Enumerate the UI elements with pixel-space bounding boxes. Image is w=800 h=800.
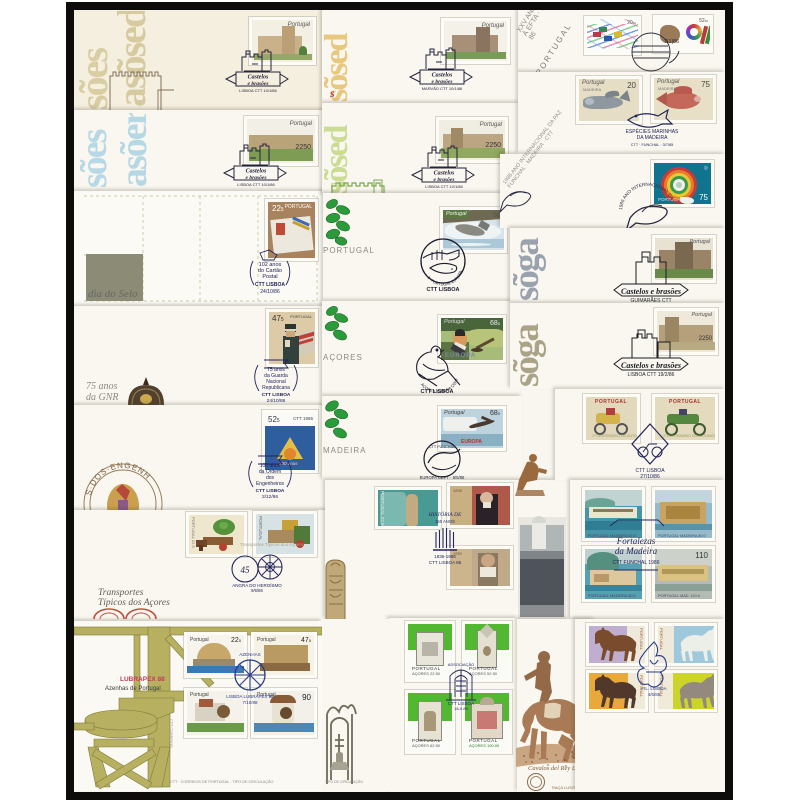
svg-text:MARVÃO CTT 10/1/86: MARVÃO CTT 10/1/86	[422, 86, 463, 91]
svg-text:18-9-89: 18-9-89	[454, 706, 469, 711]
svg-text:DA MADEIRA: DA MADEIRA	[637, 135, 669, 141]
svg-text:ESPÉCIES MARINHAS: ESPÉCIES MARINHAS	[626, 128, 679, 135]
svg-text:1836-1986: 1836-1986	[434, 554, 456, 559]
svg-text:Castelos e brasões: Castelos e brasões	[621, 287, 681, 296]
svg-text:e brasões: e brasões	[432, 79, 453, 85]
svg-text:LISBOA CTT 10/1/86: LISBOA CTT 10/1/86	[239, 88, 277, 93]
svg-text:150 ANOS: 150 ANOS	[435, 519, 455, 524]
svg-text:Castelos: Castelos	[246, 169, 267, 175]
svg-text:e brasões: e brasões	[434, 177, 455, 183]
svg-text:e brasões: e brasões	[248, 81, 269, 87]
svg-text:LISBOA CTT 10/1/86: LISBOA CTT 10/1/86	[237, 182, 275, 187]
svg-text:LISBOA CTT 19/2/86: LISBOA CTT 19/2/86	[628, 372, 675, 378]
svg-text:e brasões: e brasões	[246, 175, 267, 181]
svg-text:CTT LISBOA: CTT LISBOA	[421, 389, 454, 395]
svg-text:HISTÓRIA DE: HISTÓRIA DE	[428, 510, 462, 518]
svg-text:4/6/86: 4/6/86	[648, 692, 661, 697]
svg-text:24/10/86: 24/10/86	[260, 289, 280, 295]
svg-text:AZENHAS: AZENHAS	[239, 652, 260, 657]
svg-text:7/10/88: 7/10/88	[242, 700, 258, 705]
svg-text:24/10/86: 24/10/86	[267, 398, 286, 404]
svg-text:CTT · FUNCHAL · 3/7/85: CTT · FUNCHAL · 3/7/85	[631, 143, 673, 147]
svg-text:CTT CORREIOS: CTT CORREIOS	[169, 719, 173, 748]
svg-text:CTT LISBOA: CTT LISBOA	[255, 282, 285, 288]
svg-text:1986 ANO INTERNACIONAL DA PAZ: 1986 ANO INTERNACIONAL DA PAZ	[614, 170, 675, 210]
svg-text:1º PORTUGAL EUROPA CEPT: 1º PORTUGAL EUROPA CEPT	[417, 234, 464, 287]
svg-text:CTT FUNCHAL 1986: CTT FUNCHAL 1986	[613, 560, 660, 566]
svg-text:TIPO DE CIRCULAÇÃO: TIPO DE CIRCULAÇÃO	[325, 779, 363, 784]
svg-text:2/12/86: 2/12/86	[262, 494, 278, 500]
svg-text:Castelos: Castelos	[434, 171, 455, 177]
svg-text:FIL. LISBOA: FIL. LISBOA	[641, 686, 666, 691]
svg-text:CTT LISBOA: CTT LISBOA	[256, 488, 285, 494]
svg-text:CTT · CORREIOS DE PORTUGAL · T: CTT · CORREIOS DE PORTUGAL · TIPO DE CIR…	[170, 779, 273, 784]
svg-text:ASSOCIAÇÃO: ASSOCIAÇÃO	[448, 662, 474, 667]
svg-text:7|1|86: 7|1|86	[664, 39, 679, 45]
svg-text:dia do Selo: dia do Selo	[88, 288, 138, 300]
svg-text:Castelos: Castelos	[432, 73, 453, 79]
svg-text:Postal: Postal	[262, 274, 277, 280]
svg-text:CTT LISBOA: CTT LISBOA	[262, 392, 291, 398]
svg-text:CTT FUNCHAL: CTT FUNCHAL	[429, 445, 455, 449]
svg-text:Fortalezas: Fortalezas	[616, 536, 656, 546]
svg-text:CTT LISBOA: CTT LISBOA	[427, 287, 460, 293]
svg-text:LISBOA CTT 10/1/86: LISBOA CTT 10/1/86	[425, 184, 463, 189]
svg-text:45: 45	[241, 565, 251, 575]
svg-text:Castelos e brasões: Castelos e brasões	[621, 361, 681, 370]
svg-text:LUBRAPEX 88: LUBRAPEX 88	[120, 676, 165, 683]
svg-text:Republicana: Republicana	[262, 385, 290, 391]
svg-text:LISBOA LUBRAPEX 88: LISBOA LUBRAPEX 88	[226, 694, 274, 699]
svg-text:AÇORES EUROPA CEPT 86: AÇORES EUROPA CEPT 86	[410, 336, 460, 394]
svg-text:Castelos: Castelos	[248, 75, 269, 81]
svg-text:9/6/86: 9/6/86	[251, 588, 263, 593]
svg-text:da Madeira: da Madeira	[615, 546, 658, 556]
svg-text:Engenheiros: Engenheiros	[256, 481, 285, 487]
svg-text:Azenhas de Portugal: Azenhas de Portugal	[105, 686, 161, 692]
svg-text:CTT LISBOA 86: CTT LISBOA 86	[429, 560, 462, 565]
